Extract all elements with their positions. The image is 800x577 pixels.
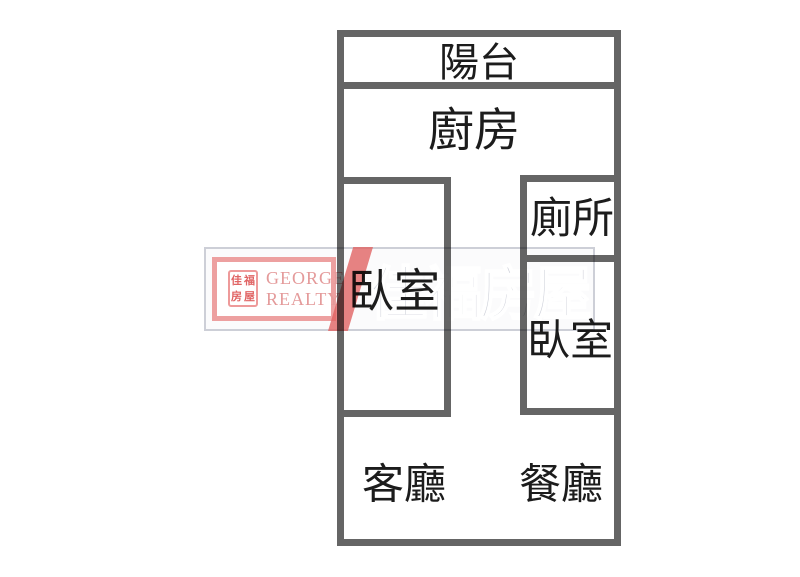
room-label-living-room: 客廳 bbox=[362, 451, 446, 512]
wall-bedroom-left-right bbox=[444, 177, 451, 417]
wall-toilet-top bbox=[520, 175, 614, 182]
room-label-toilet: 廁所 bbox=[530, 185, 614, 246]
seal-char: 屋 bbox=[244, 291, 255, 302]
george-realty-logo: 佳 福 房 屋 GEORGE REALTY bbox=[212, 257, 336, 321]
wall-outer-right bbox=[614, 30, 621, 546]
brand-seal-stamp: 佳 福 房 屋 bbox=[228, 270, 258, 307]
george-realty-wordmark: GEORGE REALTY bbox=[266, 268, 345, 310]
room-label-dining-room: 餐廳 bbox=[519, 451, 603, 512]
wall-bedroom-left-bottom bbox=[344, 410, 451, 417]
seal-char: 福 bbox=[244, 275, 255, 286]
wall-right-column-left bbox=[520, 175, 527, 415]
wall-toilet-bedroom-divider bbox=[520, 255, 614, 262]
logo-line-2: REALTY bbox=[266, 289, 345, 310]
room-label-kitchen: 廚房 bbox=[428, 94, 520, 160]
logo-line-1: GEORGE bbox=[266, 268, 345, 289]
room-label-bedroom-right: 臥室 bbox=[527, 306, 613, 368]
room-label-bedroom-left: 臥室 bbox=[348, 255, 440, 321]
wall-outer-left bbox=[337, 30, 344, 546]
floorplan-image: 陽台 廚房 廁所 臥室 臥室 客廳 餐廳 佳 福 房 屋 GEORGE REAL… bbox=[0, 0, 800, 577]
wall-outer-bottom bbox=[337, 539, 621, 546]
room-label-balcony: 陽台 bbox=[439, 30, 519, 88]
wall-bedroom-left-top bbox=[344, 177, 451, 184]
seal-char: 佳 bbox=[231, 275, 242, 286]
wall-bedroom-right-bottom bbox=[520, 408, 614, 415]
seal-char: 房 bbox=[231, 291, 242, 302]
